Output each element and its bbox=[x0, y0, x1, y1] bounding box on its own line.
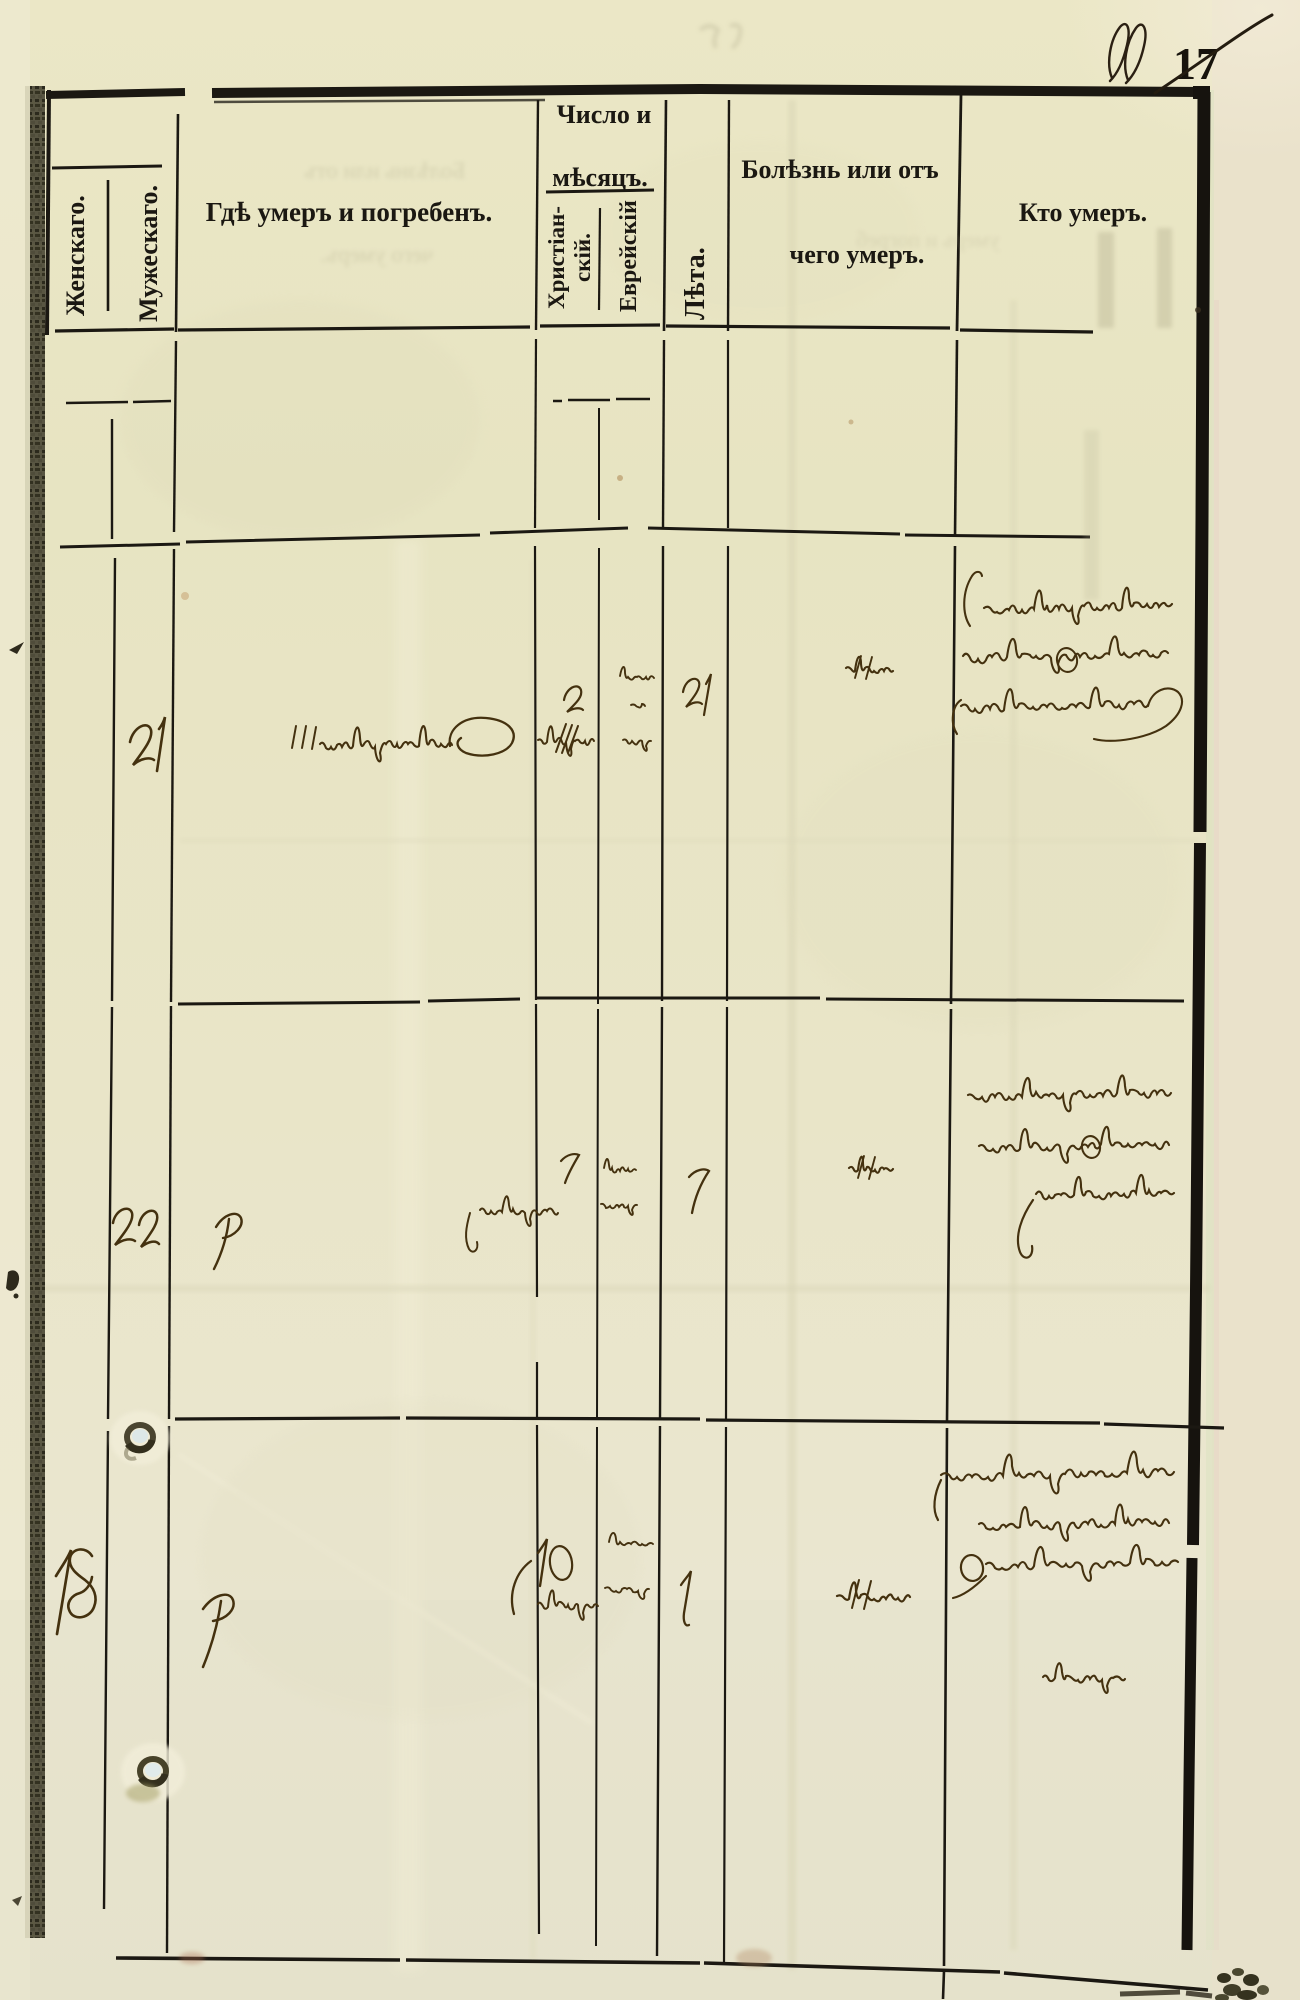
svg-text:Гдѣ умеръ и погребенъ.: Гдѣ умеръ и погребенъ. bbox=[206, 197, 493, 227]
svg-text:Мужескаго.: Мужескаго. bbox=[134, 185, 163, 322]
svg-text:Женскаго.: Женскаго. bbox=[61, 195, 90, 316]
svg-text:чего умеръ.: чего умеръ. bbox=[321, 242, 434, 267]
svg-text:Болѣзнь или отъ: Болѣзнь или отъ bbox=[741, 155, 938, 184]
svg-text:Кто умеръ.: Кто умеръ. bbox=[1019, 198, 1147, 227]
svg-text:мѣсяцъ.: мѣсяцъ. bbox=[552, 163, 648, 192]
svg-text:Болѣзнь или отъ: Болѣзнь или отъ bbox=[304, 158, 465, 183]
svg-text:Число и: Число и bbox=[557, 100, 652, 129]
svg-text:умеръ и погреб: умеръ и погреб bbox=[856, 227, 999, 252]
svg-text:Лѣта.: Лѣта. bbox=[680, 247, 711, 320]
svg-text:скій.: скій. bbox=[570, 233, 595, 282]
svg-text:Христіан-: Христіан- bbox=[544, 206, 569, 309]
svg-text:Еврейскій: Еврейскій bbox=[616, 200, 642, 312]
